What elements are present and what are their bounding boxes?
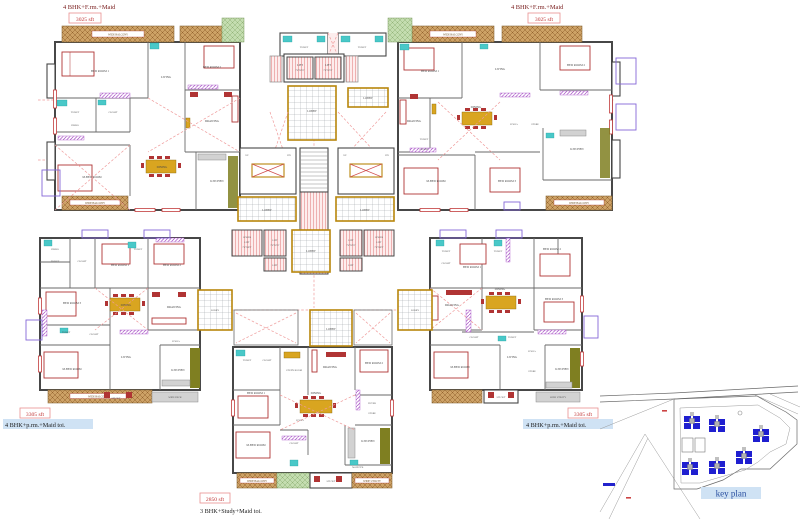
- room-label: BED ROOM 2: [543, 247, 562, 251]
- toilet-fixture: [494, 240, 502, 246]
- lift-label: LIFT: [348, 239, 354, 242]
- sofa: [446, 290, 472, 295]
- goods-lift-label: LIFT: [244, 241, 250, 244]
- lift-bank-lower: GOODS LIFT 7'6"X9'9" GOODS LIFT 7'6"X9'9…: [232, 230, 394, 272]
- room-label: TOILET: [442, 250, 451, 253]
- lift-size: 7'6"X7'6": [346, 244, 355, 247]
- bed: [44, 352, 78, 378]
- sofa: [178, 292, 186, 297]
- building-marker: [682, 458, 698, 475]
- building-marker: [709, 415, 725, 432]
- goods-lift-size: 7'6"X9'9": [242, 246, 251, 249]
- lobby-label: LOBBY: [262, 208, 273, 212]
- room-label: DRAWING: [167, 305, 182, 309]
- wardrobe: [282, 436, 306, 440]
- wardrobe: [466, 310, 471, 332]
- unit-area-value: 2850 sft: [206, 496, 225, 503]
- tv-unit: [186, 118, 190, 128]
- sofa: [232, 96, 238, 122]
- toilet-fixture: [236, 350, 245, 356]
- sofa: [432, 296, 438, 320]
- duct: [346, 56, 358, 82]
- stair-label: DN: [287, 154, 291, 157]
- balcony-band: [502, 26, 582, 42]
- room-label: DRESS: [51, 248, 59, 251]
- room-label: POOJA: [172, 340, 180, 343]
- wardrobe: [58, 136, 84, 140]
- building-marker: [709, 457, 725, 474]
- duct: [270, 56, 282, 82]
- wardrobe: [356, 390, 360, 410]
- room-label: BED ROOM 3: [545, 297, 564, 301]
- room-label: WIDE BALCONY: [108, 34, 128, 37]
- lobby-label: LOBBY: [360, 208, 371, 212]
- lobby-label: LOBBY: [363, 96, 374, 100]
- green-balcony: [222, 18, 244, 42]
- toilet-fixture: [283, 36, 292, 42]
- unit-type-label: 4 BHK+p.rm.+Maid toi.: [5, 422, 66, 429]
- room-label: SIT OUT: [111, 397, 121, 400]
- lift-block-top: LIFT 7'6"X7'6" LIFT 7'6"X7'6": [270, 54, 358, 82]
- room-label: STORE: [531, 123, 539, 126]
- room-label: DINING: [311, 391, 322, 395]
- key-plan-roads: [600, 386, 800, 519]
- tv-unit: [432, 104, 436, 114]
- room-label: BED ROOM 1: [247, 391, 266, 395]
- sofa: [410, 94, 418, 99]
- unit-type-label: 4 BHK+F.rm.+Maid: [511, 4, 564, 11]
- lift-size: 7'6"X7'6": [323, 69, 332, 72]
- sofa: [152, 292, 160, 297]
- ac-tag: [616, 104, 636, 130]
- wardrobe: [506, 238, 510, 262]
- key-plan: key plan: [600, 386, 800, 519]
- shaft: [328, 33, 338, 56]
- kitchen-counter: [162, 380, 190, 386]
- room-label: POOJA: [296, 419, 304, 422]
- toilet-fixture: [350, 460, 358, 465]
- room-label: BED ROOM 2: [365, 361, 384, 365]
- room-label: CLOSET: [469, 336, 479, 339]
- unit-area-value: 3025 sft: [535, 16, 554, 23]
- ac-tag: [144, 230, 170, 238]
- wardrobe: [188, 85, 218, 89]
- goods-lift-label: GOODS: [375, 236, 384, 239]
- room-label: WIDE BALCONY: [569, 202, 589, 205]
- toilet-fixture: [98, 100, 106, 105]
- room-label: TOILET: [358, 46, 367, 49]
- room-label: WIDE UTILITY: [550, 396, 567, 399]
- lift-size: 7'6"X7'6": [270, 244, 279, 247]
- site-marker: [603, 483, 615, 486]
- wardrobe: [560, 91, 588, 95]
- room-label: TOILET: [62, 331, 71, 334]
- room-label: TOILET: [494, 250, 503, 253]
- key-plan-label: key plan: [716, 489, 747, 499]
- landmark: [738, 411, 742, 415]
- unit-mid-left: WIDE BALCONY WIDE DECK DRESS: [26, 230, 200, 403]
- room-label: KITCHEN: [210, 179, 224, 183]
- room-label: TOILET: [420, 138, 429, 141]
- balcony-band: [432, 390, 482, 403]
- site-note-mark: [662, 410, 667, 412]
- bed: [102, 244, 130, 264]
- room-label: WIDE UTILITY: [363, 480, 381, 483]
- kitchen-counter: [228, 156, 238, 208]
- kitchen-counter: [380, 428, 390, 464]
- room-label: LIVING: [161, 75, 172, 79]
- unit-bottom: WIDE BALCONY SIT OUT WIDE UTILITY: [232, 347, 394, 488]
- toilet-fixture: [341, 36, 350, 42]
- unit-type-label: 4 BHK+p.rm.+Maid toi.: [526, 422, 587, 429]
- wardrobe: [100, 93, 130, 98]
- room-label: DRAWING: [323, 365, 338, 369]
- room-label: TOILET: [134, 248, 143, 251]
- study-desk: [284, 352, 300, 358]
- bed: [238, 396, 268, 418]
- room-label: DRAWING: [205, 119, 220, 123]
- corridor: [234, 310, 298, 345]
- lift-shaft: [315, 57, 341, 79]
- kitchen-counter: [560, 130, 586, 136]
- room-label: TOILET: [243, 359, 252, 362]
- wardrobe: [120, 330, 148, 334]
- ac-tag: [496, 230, 522, 238]
- goods-lift-label: LIFT: [376, 241, 382, 244]
- room-label: TOILET: [51, 260, 60, 263]
- toilet-fixture: [317, 36, 325, 42]
- toilet-fixture: [400, 44, 409, 50]
- lobby: [288, 86, 336, 140]
- room-label: KITCHEN: [555, 367, 569, 371]
- room-label: MAID TOI.: [352, 466, 364, 469]
- toilet-fixture: [480, 44, 488, 49]
- room-label: KITCHEN: [171, 368, 185, 372]
- unit-area-value: 3305 sft: [26, 411, 45, 418]
- room-label: DINING: [495, 287, 506, 291]
- room-label: CLOSET: [289, 442, 299, 445]
- sofa: [312, 350, 317, 372]
- room-label: CLOSET: [419, 148, 429, 151]
- unit-type-label: 3 BHK+Study+Maid toi.: [200, 508, 262, 515]
- lobby-label: LOBBY: [306, 249, 317, 253]
- wardrobe: [500, 93, 530, 97]
- room-label: LIVING: [507, 355, 518, 359]
- lobby-label: LOBBY: [307, 109, 318, 113]
- room-label: KITCHEN: [361, 439, 375, 443]
- bed: [544, 302, 574, 322]
- room-label: BED ROOM 1: [91, 69, 110, 73]
- room-label: CLOSET: [262, 359, 272, 362]
- wardrobe: [538, 330, 566, 334]
- bed: [540, 254, 570, 276]
- site-note-mark: [626, 497, 631, 499]
- room-label: BED ROOM 2: [567, 63, 586, 67]
- room-label: BED ROOM 3: [498, 179, 517, 183]
- bed: [154, 244, 184, 264]
- room-label: WIDE BALCONY: [443, 34, 463, 37]
- toilet-fixture: [375, 36, 383, 42]
- floorplan-page: WIDE BALCONY WIDE BALCONY: [0, 0, 800, 519]
- room-label: WIDE DECK: [168, 396, 182, 399]
- room-label: TOILET: [508, 336, 517, 339]
- room-label: CLOSET: [89, 333, 99, 336]
- amenity-block: [682, 438, 693, 452]
- room-label: SIT OUT: [326, 480, 336, 483]
- bed: [404, 48, 434, 70]
- room-label: POOJA: [528, 350, 536, 353]
- room-label: BED ROOM 3: [63, 301, 82, 305]
- ac-tag: [82, 230, 108, 238]
- balcony-bands: WIDE BALCONY WIDE DECK: [48, 390, 198, 403]
- sofa: [224, 92, 232, 97]
- toilet-fixture: [150, 43, 159, 49]
- room-label: FOYER: [368, 402, 376, 405]
- unit-mid-right: SIT OUT WIDE UTILITY TOILET C: [430, 230, 598, 403]
- room-label: STORE: [528, 370, 536, 373]
- room-label: M.BED ROOM: [426, 179, 446, 183]
- room-label: LIVING: [121, 355, 132, 359]
- wardrobe: [156, 238, 184, 242]
- room-label: WIDE BALCONY: [85, 202, 105, 205]
- room-label: DRAWING: [407, 119, 422, 123]
- sofa: [400, 100, 406, 124]
- green-balcony: [277, 473, 310, 488]
- kitchen-counter: [600, 128, 610, 178]
- unit-area-value: 3305 sft: [574, 411, 593, 418]
- toilet-fixture: [290, 460, 298, 466]
- room-label: TOILET: [71, 111, 80, 114]
- amenity-block: [695, 438, 705, 452]
- room-label: BED ROOM 1: [463, 265, 482, 269]
- room-label: M.BED ROOM: [82, 175, 102, 179]
- room-label: M.BED ROOM: [246, 443, 266, 447]
- lift-shaft: [287, 57, 313, 79]
- kitchen-counter: [546, 382, 572, 388]
- room-label: M.BED ROOM: [450, 365, 470, 369]
- toilet-fixture: [546, 133, 554, 138]
- kitchen-counter: [190, 348, 200, 388]
- room-label: CLOSET: [108, 111, 118, 114]
- room-label: BED ROOM 1: [111, 263, 130, 267]
- lift-shaft: [340, 230, 362, 256]
- building-marker: [753, 425, 769, 442]
- room-label: SIT OUT: [496, 396, 506, 399]
- balcony-bands: SIT OUT WIDE UTILITY: [432, 390, 580, 403]
- goods-lift-label: GOODS: [243, 236, 252, 239]
- core-toilets: TOILET TOILET: [280, 33, 386, 56]
- lift-label: LIFT: [325, 63, 331, 67]
- lift-label: LIFT: [272, 264, 278, 267]
- building-marker: [736, 447, 752, 464]
- wardrobe: [42, 310, 47, 336]
- ac-tag: [440, 230, 466, 238]
- room-label: DINING: [121, 303, 132, 307]
- green-balcony: [388, 18, 412, 42]
- kitchen-counter: [198, 154, 226, 160]
- kitchen-counter: [348, 428, 355, 458]
- unit-top-left: WIDE BALCONY WIDE BALCONY: [42, 18, 244, 212]
- building-marker: [684, 412, 700, 429]
- room-label: TOILET: [300, 46, 309, 49]
- lobby-label: LOBBY: [326, 327, 337, 331]
- bed: [62, 52, 94, 76]
- lift-label: LIFT: [297, 63, 303, 67]
- room-label: DINING: [471, 105, 482, 109]
- lift-label: LIFT: [272, 239, 278, 242]
- room-label: LIVING: [495, 67, 506, 71]
- lobby-label: LOBBY: [211, 309, 219, 312]
- toilet-fixture: [44, 240, 52, 246]
- floor-plan-canvas: WIDE BALCONY WIDE BALCONY: [0, 0, 800, 519]
- ac-tag: [584, 316, 598, 338]
- room-label: CLOSET: [441, 262, 451, 265]
- sofa: [190, 92, 198, 97]
- lobby-label: LOBBY: [411, 309, 419, 312]
- room-label: M.BED ROOM: [62, 367, 82, 371]
- room-label: DINING: [157, 165, 168, 169]
- room-label: DRAWING: [445, 303, 460, 307]
- goods-lift-size: 7'6"X9'9": [374, 246, 383, 249]
- room-label: KITCHEN: [570, 147, 584, 151]
- toilet-fixture: [57, 100, 67, 106]
- room-label: STUDY ROOM: [286, 369, 303, 372]
- room-label: BED ROOM 2: [163, 263, 182, 267]
- lift-label: LIFT: [348, 264, 354, 267]
- stair-label: DN: [385, 154, 389, 157]
- unit-top-right: WIDE BALCONY WIDE BALCONY: [388, 18, 636, 212]
- room-label: BED ROOM 1: [421, 69, 440, 73]
- unit-type-label: 4 BHK+F.rm.+Maid: [63, 4, 116, 11]
- sofa: [326, 352, 346, 357]
- lift-size: 7'6"X7'6": [295, 69, 304, 72]
- bed: [460, 244, 486, 264]
- room-label: STORE: [368, 412, 376, 415]
- unit-area-value: 3025 sft: [76, 16, 95, 23]
- room-label: WIDE BALCONY: [247, 480, 267, 483]
- lobby-arms: LOBBY LOBBY LOBBY: [198, 290, 432, 346]
- toilet-fixture: [436, 240, 444, 246]
- lift-shaft: [264, 230, 286, 256]
- room-label: CLOSET: [77, 260, 87, 263]
- room-label: POOJA: [510, 123, 518, 126]
- room-label: DRESS: [71, 124, 79, 127]
- room-label: BED ROOM 2: [203, 65, 222, 69]
- sofa: [152, 318, 186, 324]
- toilet-fixture: [498, 336, 506, 341]
- dining-table: [486, 296, 516, 309]
